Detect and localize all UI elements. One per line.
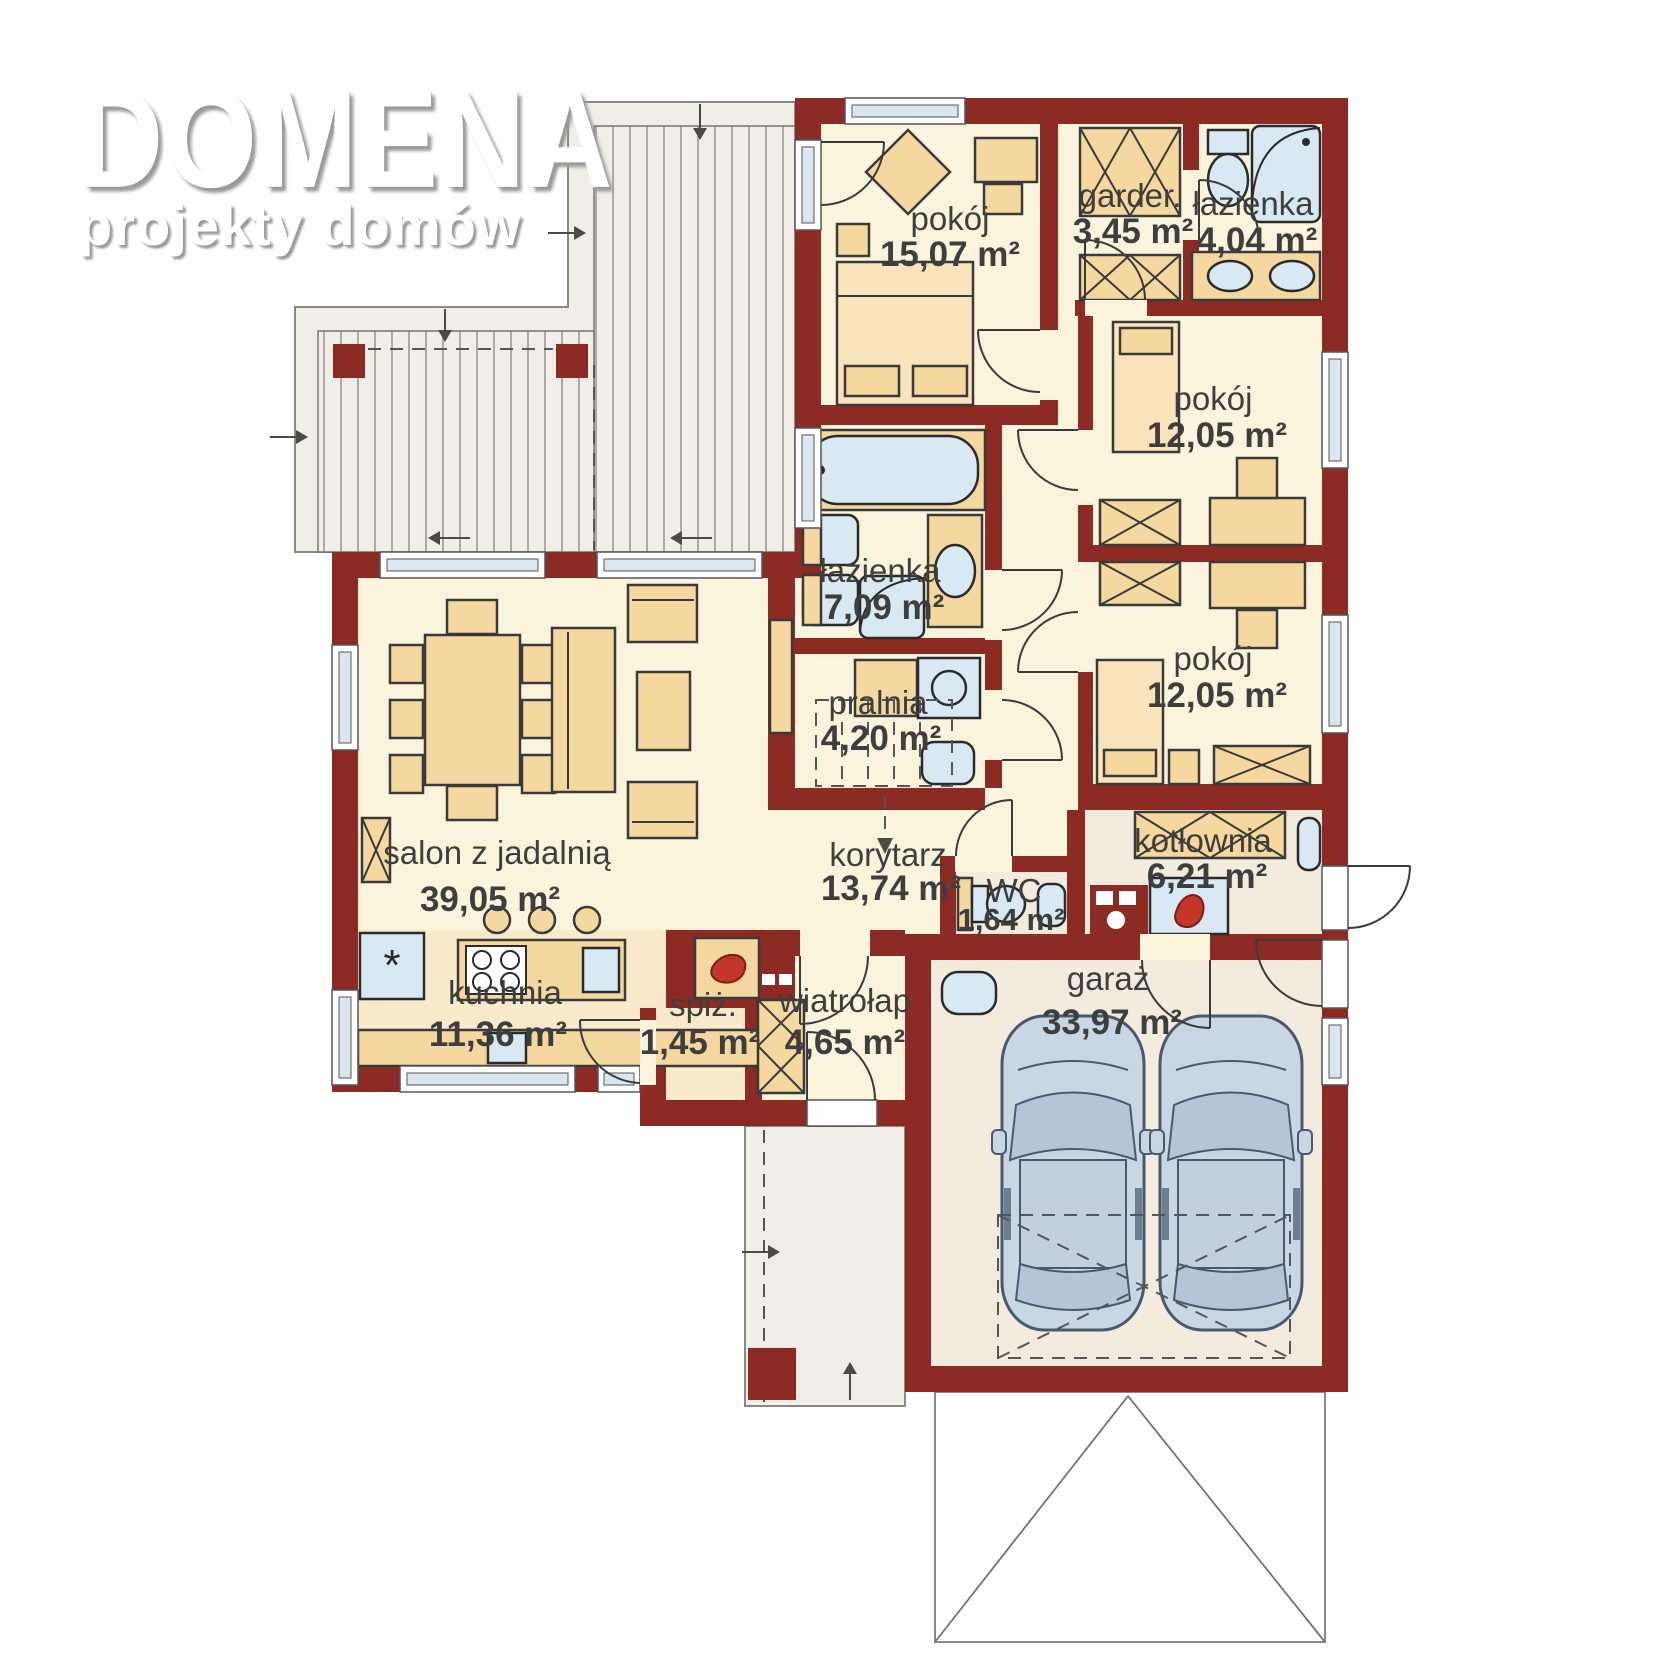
sofa [552, 628, 615, 792]
room-name: łazienka [1192, 185, 1314, 222]
terrace-pillar [556, 344, 588, 378]
terrace-deck-tall [594, 126, 795, 552]
desk [1210, 562, 1305, 608]
room-name: wiatrołap [778, 982, 911, 1019]
bar-stool [574, 907, 600, 933]
room-name: kotłownia [1134, 822, 1272, 859]
chair [522, 645, 555, 683]
armchair [628, 782, 697, 838]
room-name: kuchnia [448, 974, 562, 1011]
window [1322, 1018, 1348, 1085]
brand-logo: DOMENA projekty domów [78, 70, 614, 254]
brand-title: DOMENA [78, 70, 614, 209]
room-name: łazienka [819, 552, 941, 589]
driveway-roof-outline [935, 1392, 1325, 1642]
washbasin [1270, 261, 1314, 291]
room-area: 12,05 m² [1147, 416, 1287, 455]
room-name: pokój [911, 200, 990, 237]
room-area: 1,45 m² [640, 1023, 761, 1062]
window [1322, 352, 1348, 468]
room-name: garaż [1067, 960, 1150, 997]
room-name: pralnia [828, 684, 928, 721]
room-area: 3,45 m² [1073, 212, 1194, 251]
room-area: 15,07 m² [880, 235, 1020, 274]
dining-table [425, 635, 520, 785]
nightstand [837, 224, 869, 256]
bathtub [808, 436, 978, 504]
chair [390, 755, 423, 793]
chair [390, 700, 423, 738]
room-name: pokój [1174, 380, 1253, 417]
room-area: 11,36 m² [429, 1015, 567, 1054]
room-name: korytarz [829, 836, 946, 873]
terrace-slider [597, 552, 762, 578]
room-label-kotlownia: kotłownia 6,21 m² [1134, 822, 1272, 896]
island-sink [583, 948, 619, 992]
window [845, 98, 965, 124]
car [992, 1016, 1154, 1330]
room-name: pokój [1174, 640, 1253, 677]
chair [984, 184, 1022, 214]
room-area: 6,21 m² [1147, 857, 1268, 896]
car [1150, 1016, 1312, 1330]
tv-cabinet [770, 620, 792, 733]
window [332, 990, 358, 1085]
coffee-table [637, 672, 690, 750]
room-area: 33,97 m² [1042, 1003, 1182, 1042]
chair [447, 786, 497, 820]
nightstand [1169, 750, 1199, 784]
fridge-icon: * [383, 941, 400, 990]
room-area: 1,64 m² [958, 902, 1065, 937]
room-label-korytarz: korytarz 13,74 m² [821, 836, 961, 908]
room-label-pralnia: pralnia 4,20 m² [821, 684, 942, 758]
window [332, 645, 358, 750]
room-area: 4,65 m² [785, 1023, 906, 1062]
room-label-lazienka-duza: łazienka 7,09 m² [819, 552, 944, 627]
entrance-porch [742, 1126, 905, 1406]
chair [1237, 458, 1277, 498]
room-name: garder. [1079, 177, 1182, 214]
room-label-lazienka-mala: łazienka 4,04 m² [1192, 185, 1317, 260]
room-area: 39,05 m² [420, 880, 560, 919]
room-area: 12,05 m² [1147, 676, 1287, 715]
terrace-slider [380, 552, 545, 578]
room-area: 4,20 m² [821, 719, 942, 758]
room-area: 7,09 m² [824, 588, 945, 627]
garage-sink [942, 972, 996, 1014]
chair [390, 645, 423, 683]
armchair [628, 585, 697, 642]
room-label-garderoba: garder. 3,45 m² [1073, 177, 1194, 251]
room-name: salon z jadalnią [383, 834, 611, 871]
room-area: 13,74 m² [821, 869, 961, 908]
desk [975, 138, 1037, 182]
chair [522, 755, 555, 793]
terrace-door [795, 140, 821, 230]
room-area: 4,04 m² [1197, 221, 1318, 260]
desk [1210, 498, 1305, 545]
terrace-pillar [333, 344, 365, 378]
window [1322, 615, 1348, 733]
room-name: spiż. [669, 986, 737, 1023]
chair [447, 600, 497, 634]
chair [522, 700, 555, 738]
toilet-tank [1208, 130, 1248, 154]
window [795, 428, 821, 528]
window [400, 1066, 575, 1092]
floorplan-page: DOMENA projekty domów [0, 0, 1680, 1680]
washbasin [1208, 261, 1252, 291]
washbasin [1298, 818, 1320, 870]
